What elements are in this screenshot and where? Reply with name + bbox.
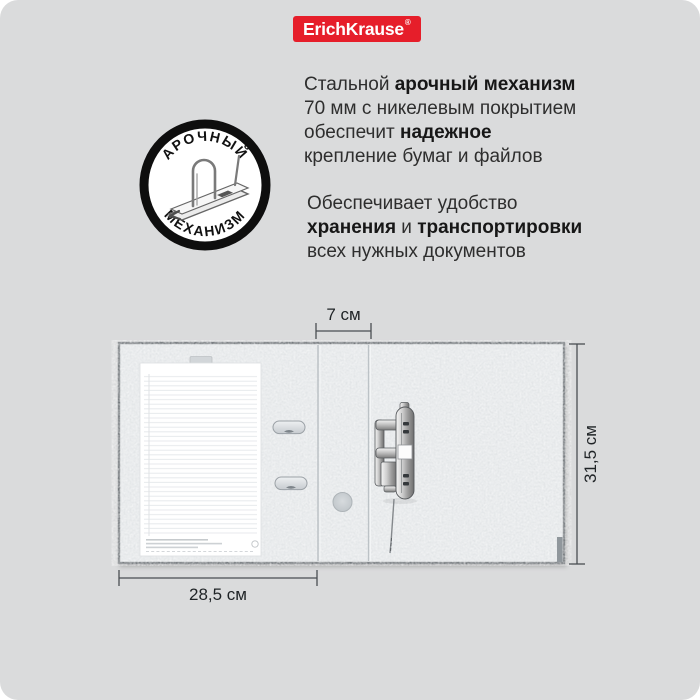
cover-width-label: 28,5 см (119, 585, 317, 605)
paper-sheet (140, 357, 261, 557)
oval-slot-top (273, 421, 305, 434)
height-label: 31,5 см (581, 414, 601, 494)
cover-edge-detail (557, 537, 563, 562)
paper-ruled-lines (144, 374, 257, 536)
product-card: ErichKrause® Стальной арочный механизм 7… (0, 0, 700, 700)
product-photo (0, 0, 700, 700)
oval-slot-bottom (275, 477, 307, 490)
dimension-line-spine (316, 323, 371, 339)
spine-width-label: 7 см (316, 305, 371, 325)
dimension-line-width (119, 570, 317, 586)
folder (119, 343, 564, 563)
rado-hole (333, 493, 352, 512)
